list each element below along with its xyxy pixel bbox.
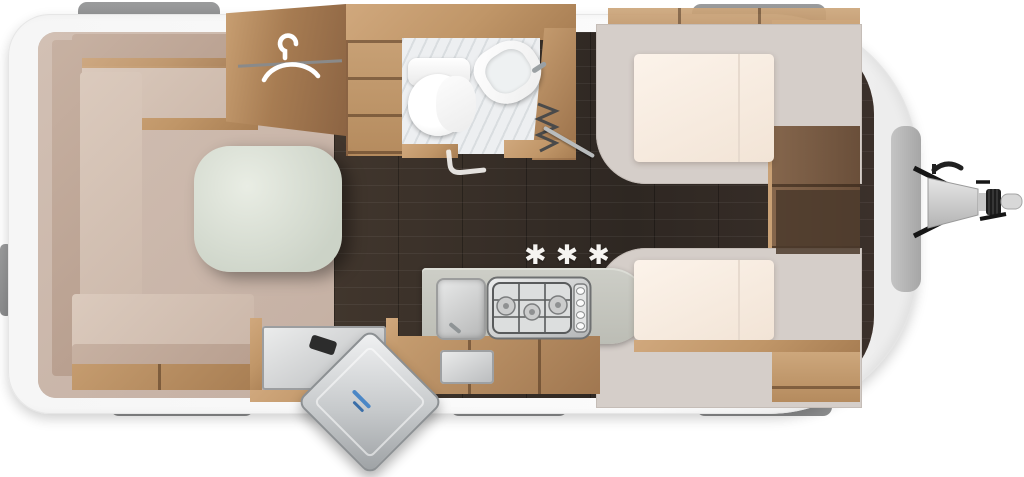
heating-marker: ✱✱✱ bbox=[524, 240, 619, 271]
head-cabinet-dark-niche bbox=[776, 190, 860, 254]
dinette-storage-bottom bbox=[72, 364, 254, 390]
l-shaped-handle-icon bbox=[440, 146, 489, 183]
tow-hitch-icon bbox=[898, 156, 1024, 248]
washroom-wall-top bbox=[346, 4, 576, 40]
single-bed-bottom bbox=[634, 260, 774, 340]
dinette-seat-bottom bbox=[72, 294, 254, 350]
cutlery-drawer bbox=[440, 350, 494, 384]
caravan-floorplan: ✱✱✱ bbox=[0, 0, 1024, 477]
dinette-table bbox=[194, 146, 342, 272]
head-shelf-bottom-right bbox=[772, 352, 860, 402]
three-burner-hob-icon bbox=[486, 276, 592, 340]
single-bed-top bbox=[634, 54, 774, 162]
kitchen-base-cabinet bbox=[398, 336, 600, 394]
coat-hanger-icon bbox=[256, 32, 324, 94]
bed-side-rail-bottom bbox=[634, 340, 860, 352]
